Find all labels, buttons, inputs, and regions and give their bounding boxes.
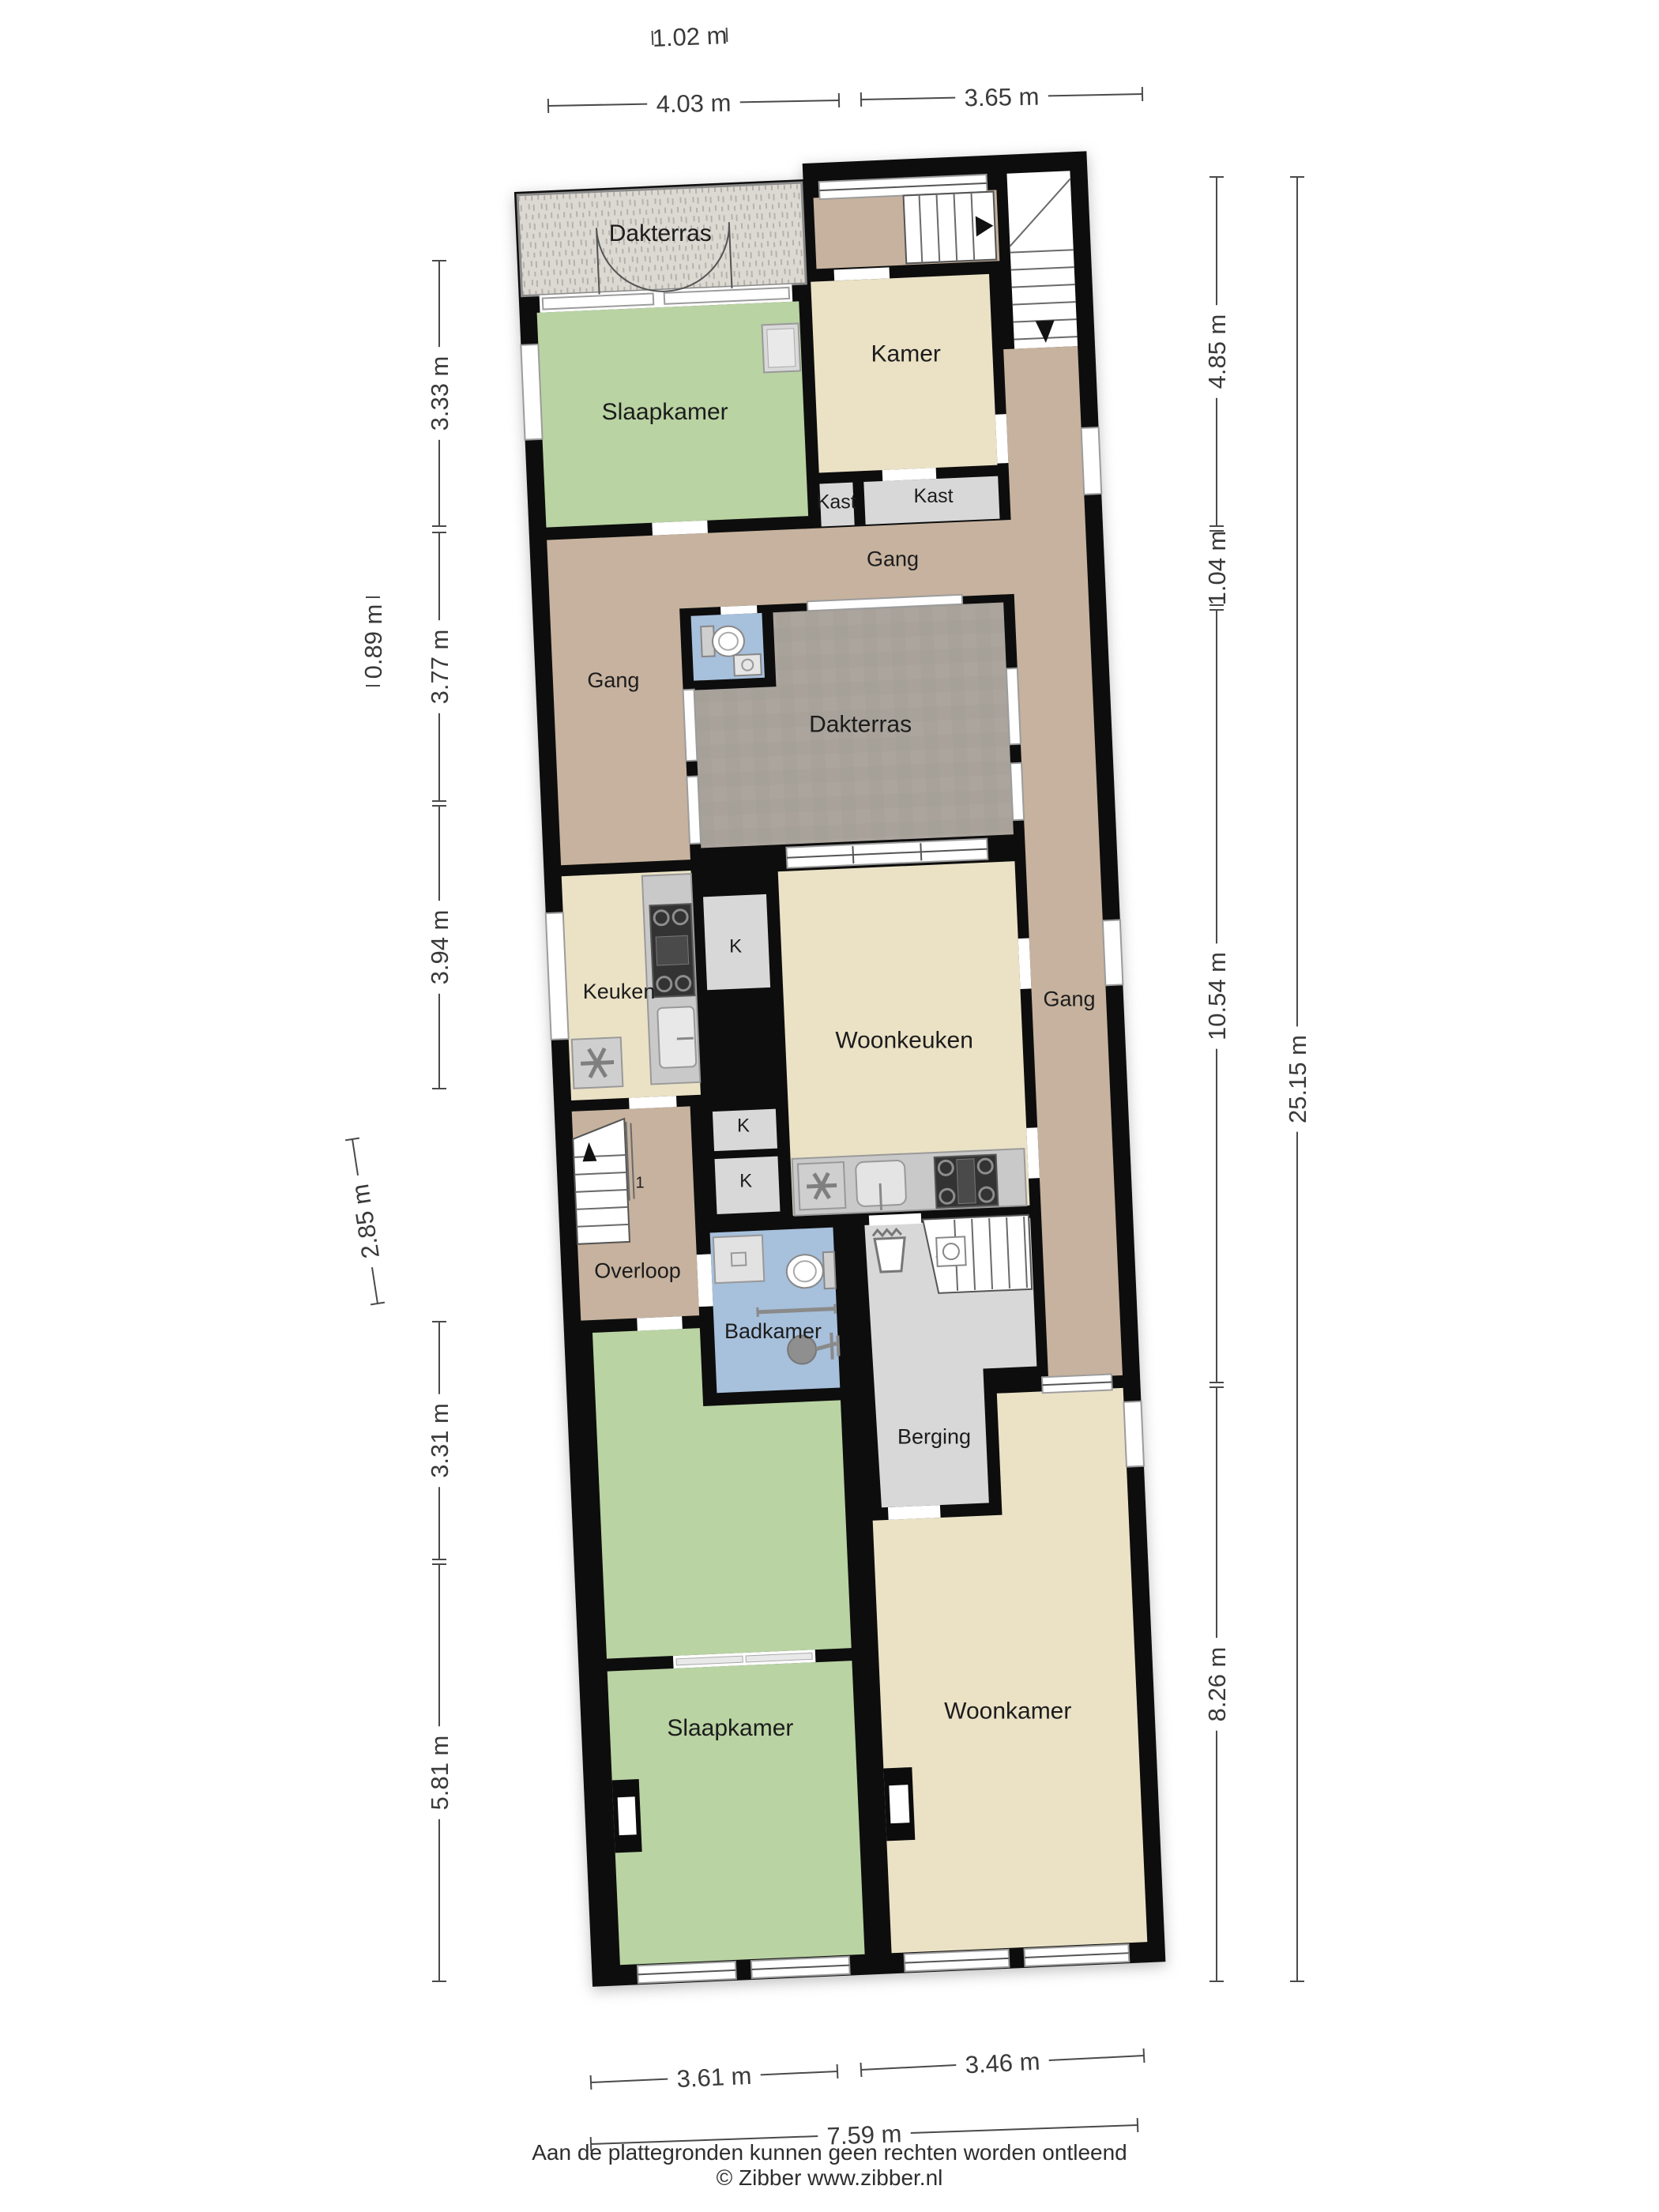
window-right-woonkamer bbox=[1123, 1401, 1144, 1467]
dim-label-dim-8-26: 8.26 m bbox=[1203, 1647, 1231, 1722]
door-overloop-badkamer bbox=[697, 1254, 713, 1307]
room-label-k-2: K bbox=[737, 1115, 750, 1136]
window-terrace-gang-1 bbox=[1006, 668, 1021, 745]
shower-icon bbox=[713, 1236, 764, 1284]
room-label-woonkeuken: Woonkeuken bbox=[835, 1027, 973, 1053]
window-terrace-gang-2 bbox=[1010, 763, 1024, 821]
dim-segment-dim-3-65 bbox=[861, 98, 955, 100]
window-right-mid bbox=[1103, 920, 1123, 985]
room-label-kamer: Kamer bbox=[871, 341, 941, 367]
room-label-gang-right: Gang bbox=[1043, 987, 1095, 1010]
dim-segment-dim-3-46 bbox=[861, 2065, 956, 2070]
dim-label-dim-4-85: 4.85 m bbox=[1203, 314, 1231, 389]
room-label-k-1: K bbox=[729, 936, 742, 957]
stairs-entry bbox=[904, 192, 997, 264]
chimney-slaapkamer bbox=[612, 1779, 642, 1853]
room-label-gang-top: Gang bbox=[867, 547, 919, 571]
window-gangleft-terrace-1 bbox=[683, 690, 698, 762]
dim-label-dim-3-33: 3.33 m bbox=[426, 356, 453, 431]
door-slaapkamer-top bbox=[652, 521, 708, 536]
dim-label-dim-3-65: 3.65 m bbox=[964, 83, 1039, 112]
dim-label-dim-4-03: 4.03 m bbox=[656, 89, 731, 118]
room-label-slaapkamer-top: Slaapkamer bbox=[602, 399, 728, 425]
dim-label-dim-0-89: 0.89 m bbox=[359, 604, 387, 679]
room-label-kast-2: Kast bbox=[914, 485, 954, 507]
dim-label-dim-2-85: 2.85 m bbox=[346, 1182, 385, 1260]
door-woonkeuken-gang-1 bbox=[1018, 938, 1032, 989]
window-right-upper bbox=[1082, 427, 1102, 495]
keuken-fan-icon bbox=[572, 1037, 623, 1089]
window-gangleft-terrace-2 bbox=[687, 777, 701, 845]
dim-label-dim-25-15: 25.15 m bbox=[1284, 1035, 1311, 1123]
room-label-keuken: Keuken bbox=[583, 980, 656, 1003]
dim-label-dim-1-02: 1.02 m bbox=[652, 21, 728, 52]
dim-label-dim-3-46: 3.46 m bbox=[965, 2048, 1040, 2079]
door-kamer-kast bbox=[882, 468, 937, 481]
dim-segment-dim-3-61 bbox=[591, 2079, 668, 2082]
window-left-slaapkamer bbox=[521, 344, 542, 440]
toilet-sink-icon bbox=[734, 654, 762, 675]
dim-segment-dim-4-03 bbox=[548, 104, 647, 106]
room-label-woonkamer: Woonkamer bbox=[944, 1698, 1071, 1725]
room-label-stair-number: 1 bbox=[635, 1174, 644, 1191]
chimney-woonkamer bbox=[883, 1767, 915, 1841]
washing-machine-icon bbox=[936, 1236, 966, 1266]
room-label-badkamer: Badkamer bbox=[724, 1319, 822, 1343]
room-floor-kamer bbox=[811, 274, 997, 473]
door-berging-woonkamer bbox=[888, 1505, 941, 1520]
door-woonkeuken-gang-2 bbox=[1026, 1127, 1040, 1179]
room-label-k-3: K bbox=[739, 1170, 752, 1191]
footer-copyright: © Zibber www.zibber.nl bbox=[717, 2165, 943, 2190]
door-toilet bbox=[720, 605, 757, 615]
dim-label-dim-3-94: 3.94 m bbox=[426, 910, 453, 985]
floorplan-svg: DakterrasSlaapkamerKamerKastKastGangGang… bbox=[0, 0, 1659, 2212]
building-group: DakterrasSlaapkamerKamerKastKastGangGang… bbox=[513, 151, 1165, 1986]
dim-label-dim-10-54: 10.54 m bbox=[1203, 952, 1231, 1040]
dim-label-dim-3-77: 3.77 m bbox=[426, 630, 453, 705]
badkamer-toilet-icon bbox=[786, 1254, 824, 1288]
floorplan-page: DakterrasSlaapkamerKamerKastKastGangGang… bbox=[0, 0, 1659, 2212]
dim-label-dim-3-61: 3.61 m bbox=[676, 2062, 752, 2093]
door-keuken-overloop bbox=[629, 1096, 677, 1109]
dim-label-dim-5-81: 5.81 m bbox=[426, 1736, 453, 1811]
room-floor-slaapkamer-bottom bbox=[608, 1661, 865, 1965]
dim-segment-dim-2-85 bbox=[352, 1139, 358, 1176]
room-label-gang-left: Gang bbox=[587, 668, 639, 692]
room-label-kast-1: Kast bbox=[817, 491, 856, 513]
room-label-dakterras-mid: Dakterras bbox=[809, 712, 912, 738]
dim-label-dim-1-04: 1.04 m bbox=[1203, 531, 1231, 606]
room-label-dakterras-top: Dakterras bbox=[609, 220, 712, 246]
footer-disclaimer: Aan de plattegronden kunnen geen rechten… bbox=[532, 2140, 1127, 2165]
dim-label-dim-3-31: 3.31 m bbox=[426, 1403, 453, 1478]
toilet-bowl-icon bbox=[712, 626, 745, 657]
stairs-overloop bbox=[572, 1119, 636, 1244]
room-label-overloop: Overloop bbox=[594, 1258, 681, 1282]
door-overloop-greenroom bbox=[637, 1316, 683, 1330]
room-label-slaapkamer-bottom: Slaapkamer bbox=[667, 1715, 793, 1741]
woonkeuken-fan-icon bbox=[798, 1162, 845, 1209]
door-kamer-gang bbox=[995, 414, 1009, 464]
room-label-berging: Berging bbox=[897, 1424, 971, 1448]
badkamer-toilet-cistern bbox=[823, 1252, 836, 1289]
